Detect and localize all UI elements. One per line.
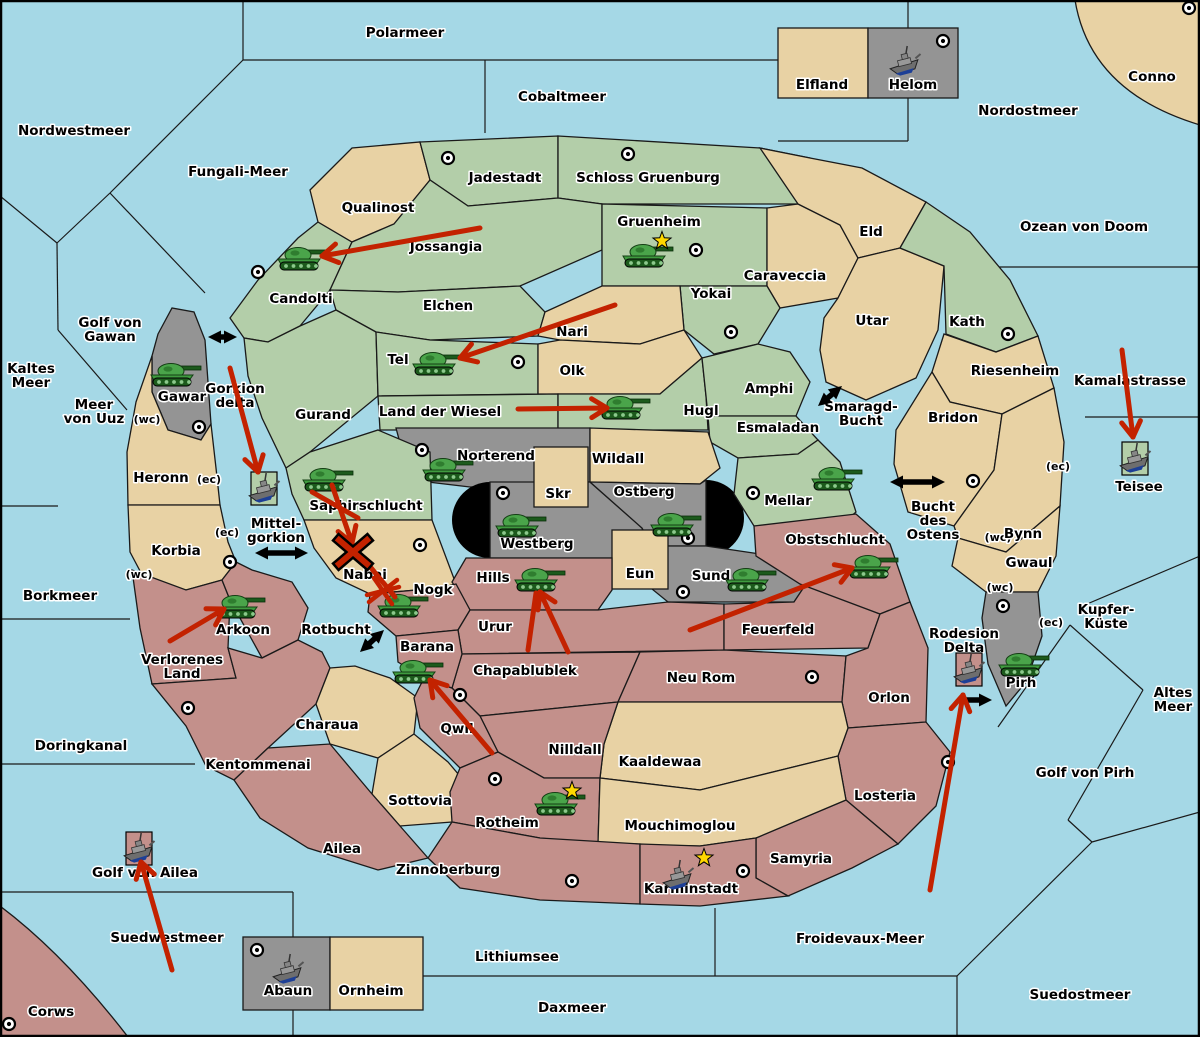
sea-label-kamalastrasse: Kamalastrasse bbox=[1074, 373, 1186, 389]
supply-center-icon bbox=[1183, 2, 1195, 14]
region-label-arkoon: Arkoon bbox=[216, 622, 270, 638]
sea-label-borkmeer: Borkmeer bbox=[23, 588, 98, 604]
region-label-karminstadt: Karminstadt bbox=[644, 881, 739, 897]
region-label-ornheim: Ornheim bbox=[338, 983, 403, 999]
supply-center-icon bbox=[442, 152, 454, 164]
region-label-conno: Conno bbox=[1128, 69, 1176, 85]
region-label-ostberg: Ostberg bbox=[613, 484, 674, 500]
region-label-jossangia: Jossangia bbox=[409, 239, 483, 255]
supply-center-icon bbox=[997, 600, 1009, 612]
region-label-orlon: Orlon bbox=[868, 690, 910, 706]
region-label-hills: Hills bbox=[476, 570, 509, 586]
region-label-helom: Helom bbox=[889, 77, 937, 93]
supply-center-icon bbox=[1002, 328, 1014, 340]
supply-center-icon bbox=[967, 475, 979, 487]
sea-label-doringkanal: Doringkanal bbox=[35, 738, 127, 754]
sea-label-altes-meer: AltesMeer bbox=[1154, 685, 1193, 715]
supply-center-icon bbox=[690, 244, 702, 256]
sea-label-lithiumsee: Lithiumsee bbox=[475, 949, 559, 965]
region-label-caraveccia: Caraveccia bbox=[744, 268, 826, 284]
region-label-mouchimoglou: Mouchimoglou bbox=[624, 818, 735, 834]
region-label-gwaul: Gwaul bbox=[1006, 555, 1053, 571]
supply-center-icon bbox=[454, 689, 466, 701]
sea-label-nordostmeer: Nordostmeer bbox=[978, 103, 1078, 119]
supply-center-icon bbox=[512, 356, 524, 368]
region-label-riesenheim: Riesenheim bbox=[971, 363, 1059, 379]
sea-label-golf-von-gawan: Golf vonGawan bbox=[78, 315, 141, 345]
supply-center-icon bbox=[725, 326, 737, 338]
supply-center-icon bbox=[414, 539, 426, 551]
supply-center-icon bbox=[3, 1018, 15, 1030]
sea-label-froidevaux-meer: Froidevaux-Meer bbox=[796, 931, 924, 947]
sea-label-nordwestmeer: Nordwestmeer bbox=[18, 123, 130, 139]
supply-center-icon bbox=[737, 865, 749, 877]
region-label-rotheim: Rotheim bbox=[475, 815, 539, 831]
region-label-utar: Utar bbox=[855, 313, 889, 329]
region-label-yokai: Yokai bbox=[690, 286, 732, 302]
supply-center-icon bbox=[252, 266, 264, 278]
region-label-qualinost: Qualinost bbox=[342, 200, 415, 216]
coast-mark-label: (wc) bbox=[134, 413, 161, 426]
region-label-jadestadt: Jadestadt bbox=[468, 170, 542, 186]
region-label-mellar: Mellar bbox=[764, 493, 812, 509]
region-label-kath: Kath bbox=[949, 314, 985, 330]
region-label-corws: Corws bbox=[28, 1004, 74, 1020]
region-label-olk: Olk bbox=[559, 363, 585, 379]
region-label-korbia: Korbia bbox=[151, 543, 201, 559]
sea-label-ozean-von-doom: Ozean von Doom bbox=[1020, 219, 1148, 235]
sea-label-golf-von-pirh: Golf von Pirh bbox=[1036, 765, 1135, 781]
region-label-ailea: Ailea bbox=[323, 841, 361, 857]
coast-mark-label: (ec) bbox=[1046, 460, 1070, 473]
region-label-westberg: Westberg bbox=[500, 536, 573, 552]
region-label-gurand: Gurand bbox=[295, 407, 351, 423]
sea-label-daxmeer: Daxmeer bbox=[538, 1000, 606, 1016]
supply-center-icon bbox=[489, 773, 501, 785]
region-label-bridon: Bridon bbox=[928, 410, 978, 426]
supply-center-icon bbox=[416, 444, 428, 456]
region-label-gawar: Gawar bbox=[158, 389, 207, 405]
region-label-urur: Urur bbox=[478, 619, 512, 635]
supply-center-icon bbox=[806, 671, 818, 683]
region-label-elfland: Elfland bbox=[796, 77, 848, 93]
region-label-kentommenai: Kentommenai bbox=[205, 757, 310, 773]
region-label-pirh: Pirh bbox=[1006, 675, 1037, 691]
sea-label-cobaltmeer: Cobaltmeer bbox=[518, 89, 606, 105]
region-label-zinnoberburg: Zinnoberburg bbox=[396, 862, 500, 878]
region-label-elchen: Elchen bbox=[423, 298, 473, 314]
region-label-bynn: Bynn bbox=[1004, 526, 1042, 542]
region-label-neu-rom: Neu Rom bbox=[667, 670, 736, 686]
sea-label-mittel-gorkion: Mittel-gorkion bbox=[247, 516, 305, 546]
supply-center-icon bbox=[224, 556, 236, 568]
region-label-eld: Eld bbox=[859, 224, 883, 240]
region-label-sund: Sund bbox=[692, 568, 731, 584]
region-label-esmaladan: Esmaladan bbox=[737, 420, 820, 436]
region-label-schloss-gruenburg: Schloss Gruenburg bbox=[576, 170, 720, 186]
region-label-losteria: Losteria bbox=[854, 788, 916, 804]
sea-label-polarmeer: Polarmeer bbox=[366, 25, 445, 41]
region-label-candolti: Candolti bbox=[269, 291, 332, 307]
region-ornheim[interactable] bbox=[330, 937, 423, 1010]
region-label-skr: Skr bbox=[545, 486, 571, 502]
region-label-wildall: Wildall bbox=[592, 451, 644, 467]
coast-mark-label: (wc) bbox=[126, 568, 153, 581]
region-label-abaun: Abaun bbox=[264, 983, 312, 999]
sea-label-kaltes-meer: KaltesMeer bbox=[7, 361, 55, 391]
region-label-feuerfeld: Feuerfeld bbox=[742, 622, 815, 638]
coast-mark-label: (ec) bbox=[197, 473, 221, 486]
region-label-nari: Nari bbox=[556, 324, 588, 340]
supply-center-icon bbox=[182, 702, 194, 714]
region-label-kaaldewaa: Kaaldewaa bbox=[619, 754, 702, 770]
region-label-amphi: Amphi bbox=[745, 381, 793, 397]
supply-center-icon bbox=[497, 487, 509, 499]
region-label-heronn: Heronn bbox=[133, 470, 189, 486]
region-label-barana: Barana bbox=[400, 639, 454, 655]
game-map: (wc)(ec)(ec)(wc)(ec)(wc)(wc)(ec)Candolti… bbox=[0, 0, 1200, 1037]
sea-label-kupfer-k-ste: Kupfer-Küste bbox=[1078, 602, 1135, 632]
sea-label-suedostmeer: Suedostmeer bbox=[1030, 987, 1131, 1003]
region-label-sottovia: Sottovia bbox=[388, 793, 452, 809]
region-label-gruenheim: Gruenheim bbox=[617, 214, 701, 230]
region-label-nogk: Nogk bbox=[413, 582, 453, 598]
region-label-samyria: Samyria bbox=[770, 851, 832, 867]
map-root: (wc)(ec)(ec)(wc)(ec)(wc)(wc)(ec)Candolti… bbox=[0, 0, 1200, 1037]
region-label-chapablublek: Chapablublek bbox=[473, 663, 578, 679]
region-label-hugl: Hugl bbox=[683, 403, 718, 419]
sea-label-teisee: Teisee bbox=[1115, 479, 1163, 495]
supply-center-icon bbox=[622, 148, 634, 160]
supply-center-icon bbox=[566, 875, 578, 887]
sea-label-fungali-meer: Fungali-Meer bbox=[188, 164, 288, 180]
supply-center-icon bbox=[251, 944, 263, 956]
supply-center-icon bbox=[937, 35, 949, 47]
coast-mark-label: (wc) bbox=[987, 581, 1014, 594]
sea-label-rotbucht: Rotbucht bbox=[301, 622, 371, 638]
supply-center-icon bbox=[747, 487, 759, 499]
coast-mark-label: (ec) bbox=[215, 526, 239, 539]
sea-label-suedwestmeer: Suedwestmeer bbox=[110, 930, 224, 946]
supply-center-icon bbox=[193, 421, 205, 433]
supply-center-icon bbox=[677, 586, 689, 598]
region-label-land-der-wiesel: Land der Wiesel bbox=[379, 404, 501, 420]
region-label-obstschlucht: Obstschlucht bbox=[785, 532, 885, 548]
coast-mark-label: (ec) bbox=[1039, 616, 1063, 629]
region-label-charaua: Charaua bbox=[295, 717, 358, 733]
region-label-eun: Eun bbox=[626, 566, 654, 582]
region-label-nilldall: Nilldall bbox=[548, 742, 601, 758]
region-label-tel: Tel bbox=[387, 352, 408, 368]
